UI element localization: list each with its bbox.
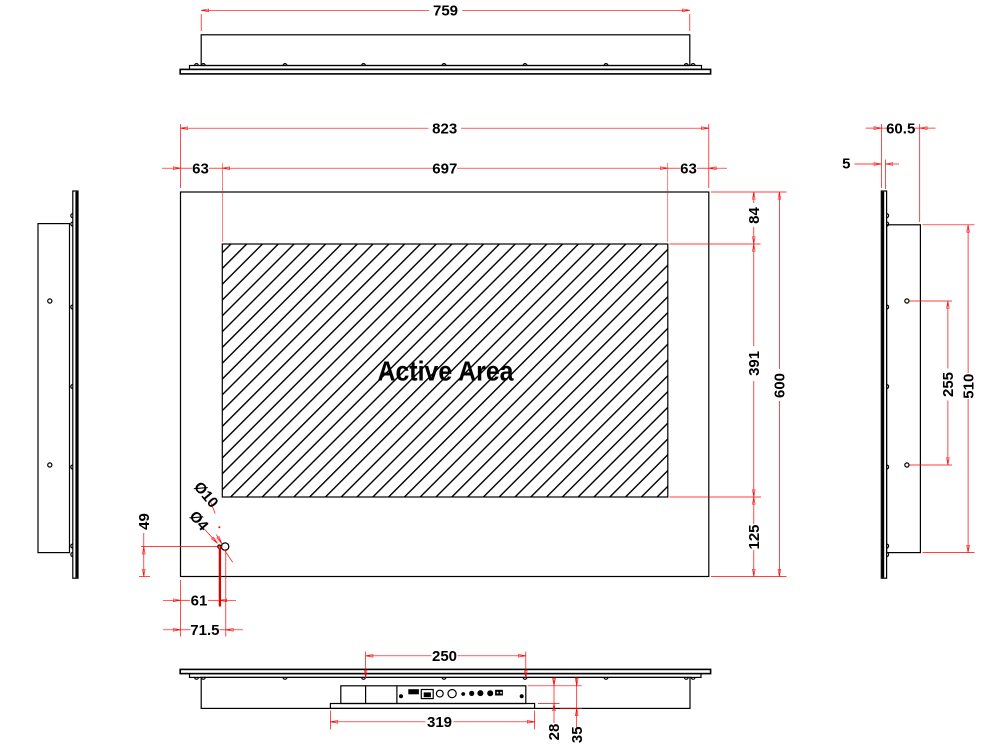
svg-text:697: 697 (432, 160, 457, 177)
svg-text:510: 510 (960, 374, 977, 399)
svg-text:49: 49 (136, 513, 153, 530)
svg-text:71.5: 71.5 (190, 622, 219, 639)
svg-text:35: 35 (569, 726, 586, 743)
svg-text:Active Area: Active Area (378, 355, 514, 386)
svg-text:391: 391 (746, 351, 763, 376)
svg-text:61: 61 (191, 593, 208, 610)
svg-text:63: 63 (192, 160, 209, 177)
svg-text:60.5: 60.5 (886, 120, 915, 137)
svg-text:759: 759 (433, 3, 458, 20)
svg-text:600: 600 (772, 373, 789, 398)
svg-text:319: 319 (427, 714, 452, 731)
svg-text:255: 255 (940, 372, 957, 397)
svg-text:63: 63 (680, 160, 697, 177)
svg-text:125: 125 (746, 524, 763, 549)
svg-text:28: 28 (546, 724, 563, 741)
svg-text:5: 5 (842, 155, 850, 172)
svg-text:823: 823 (432, 120, 457, 137)
svg-text:250: 250 (432, 648, 457, 665)
svg-text:84: 84 (746, 207, 763, 224)
